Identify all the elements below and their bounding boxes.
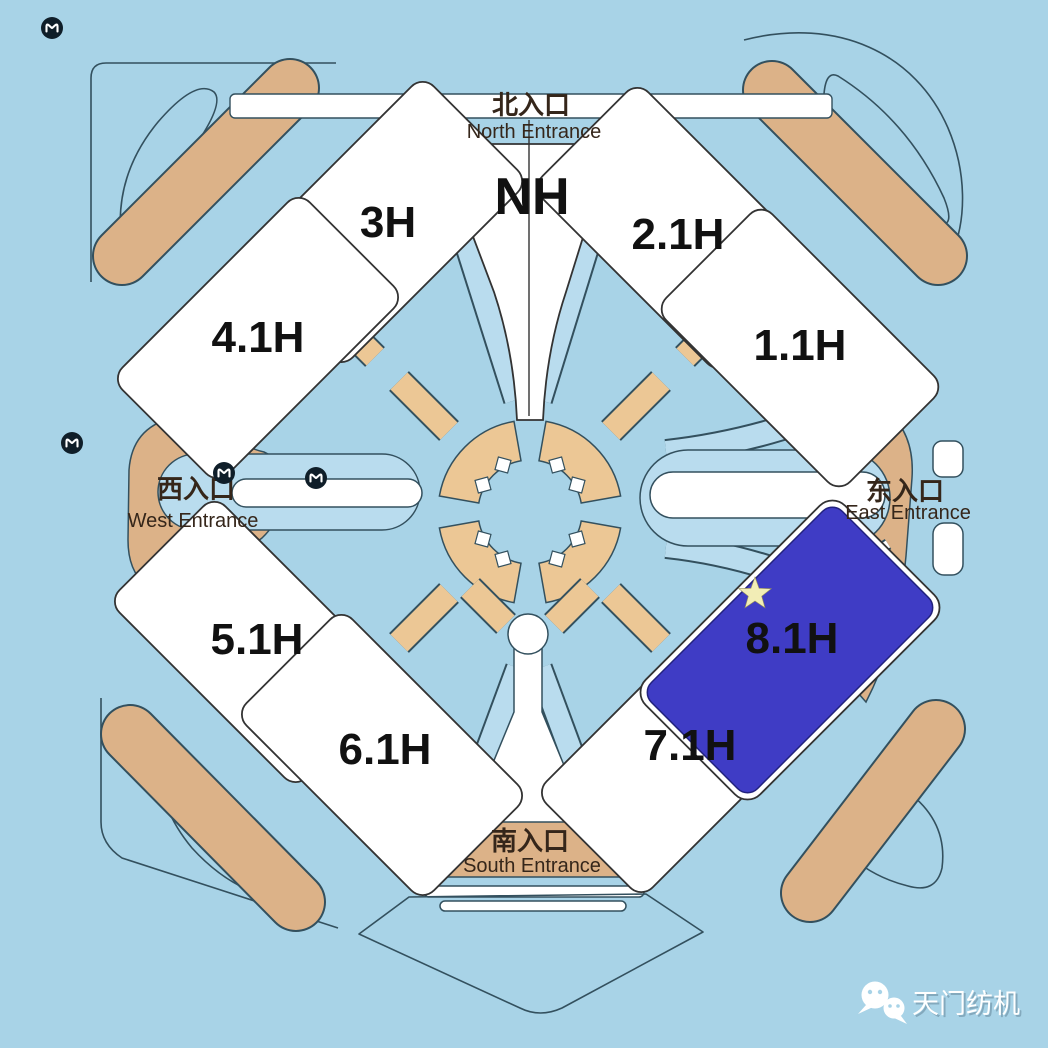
metro-icon: [61, 432, 83, 454]
entrance-south-label-zh: 南入口: [491, 826, 569, 856]
entrance-north-label-en: North Entrance: [467, 121, 602, 143]
hall-label-6-1h: 6.1H: [339, 725, 432, 774]
metro-icon: [213, 462, 235, 484]
metro-icon: [41, 17, 63, 39]
metro-icon: [305, 467, 327, 489]
exhibition-floor-map: 3H NH 2.1H 4.1H 1.1H 5.1H 6.1H 7.1H 8.1H…: [0, 0, 1048, 1048]
entrance-south-label-en: South Entrance: [463, 855, 601, 877]
entrance-west-label-en: West Entrance: [128, 510, 259, 532]
hall-label-7-1h: 7.1H: [644, 721, 737, 770]
hall-label-8-1h: 8.1H: [746, 614, 839, 663]
hall-label-1-1h: 1.1H: [754, 321, 847, 370]
hall-label-2-1h: 2.1H: [632, 210, 725, 259]
watermark-text: 天门纺机: [912, 989, 1020, 1019]
map-canvas: 3H NH 2.1H 4.1H 1.1H 5.1H 6.1H 7.1H 8.1H…: [0, 0, 1048, 1048]
hall-label-5-1h: 5.1H: [211, 615, 304, 664]
entrance-north-label-zh: 北入口: [492, 90, 570, 120]
hall-label-3h: 3H: [360, 198, 416, 247]
hall-label-nh: NH: [494, 168, 569, 226]
hall-label-4-1h: 4.1H: [212, 313, 305, 362]
entrance-east-label-en: East Entrance: [845, 502, 971, 524]
